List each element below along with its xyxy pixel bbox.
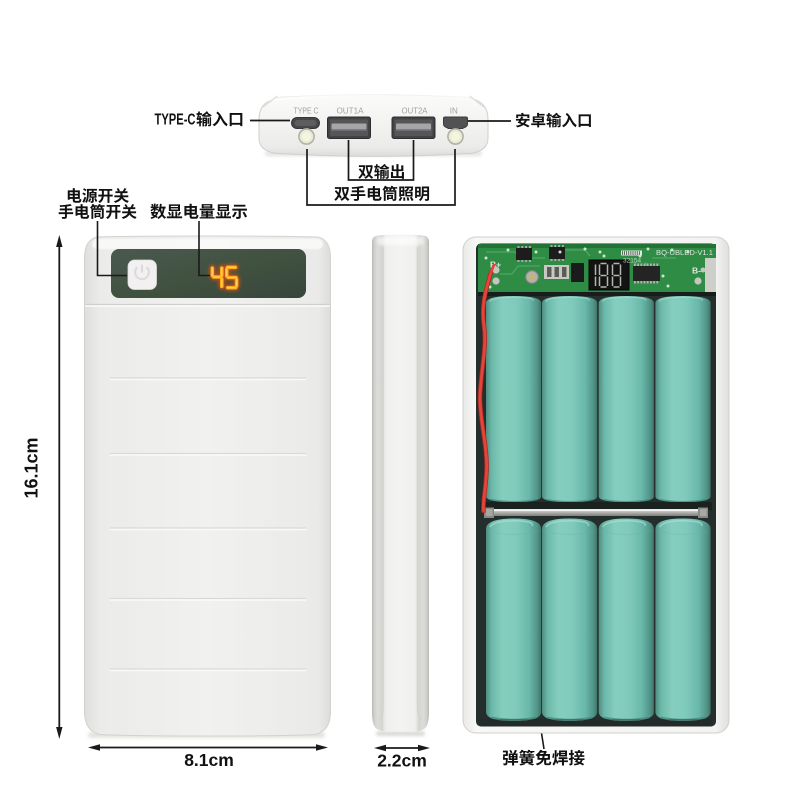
svg-text:TYPE-C: TYPE-C xyxy=(155,112,196,129)
svg-text:TYPE C: TYPE C xyxy=(294,106,319,116)
svg-text:OUT2A: OUT2A xyxy=(402,106,428,116)
svg-text:8.1cm: 8.1cm xyxy=(184,750,234,770)
svg-text:B-: B- xyxy=(692,266,701,276)
svg-text:IN: IN xyxy=(450,106,458,116)
svg-text:16.1cm: 16.1cm xyxy=(22,437,42,498)
svg-text:32154: 32154 xyxy=(623,258,641,265)
svg-text:BQ-UBLED-V1.1: BQ-UBLED-V1.1 xyxy=(656,250,713,257)
svg-text:2.2cm: 2.2cm xyxy=(377,751,427,771)
svg-text:OUT1A: OUT1A xyxy=(337,106,364,116)
